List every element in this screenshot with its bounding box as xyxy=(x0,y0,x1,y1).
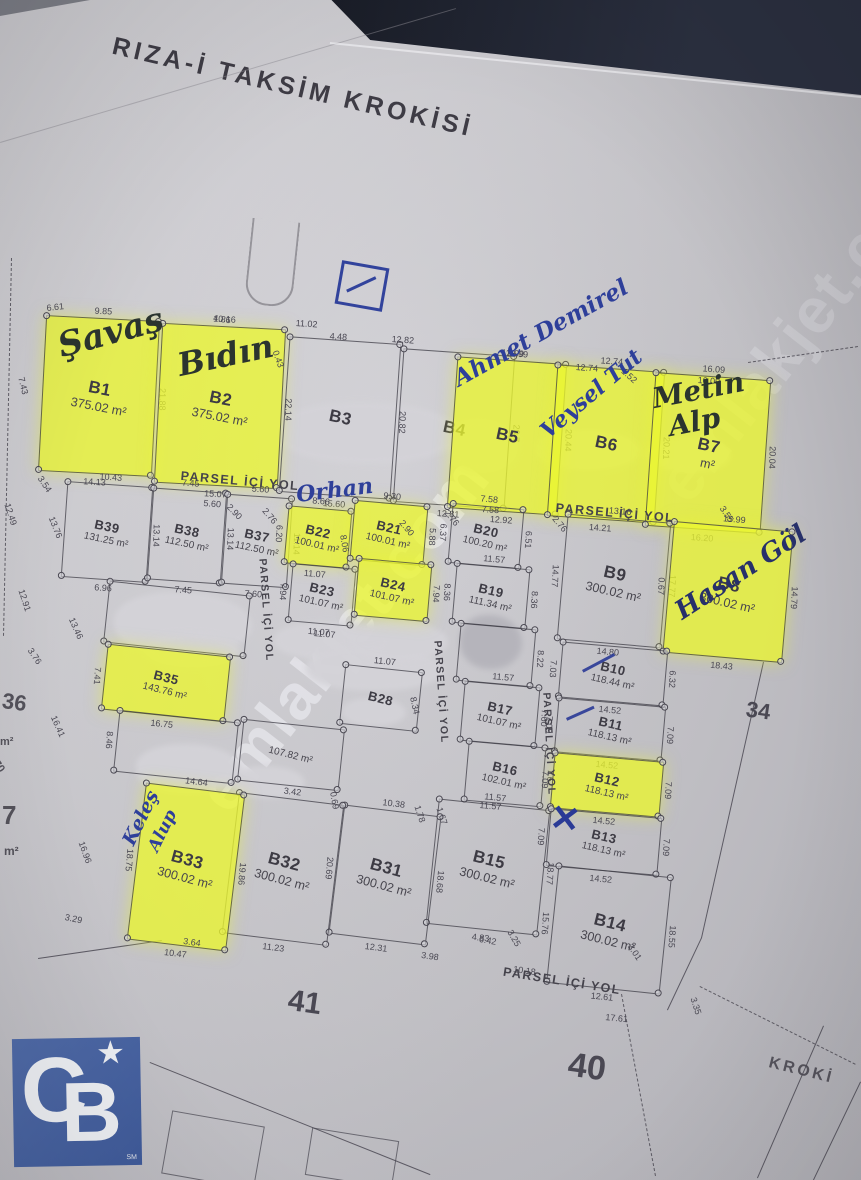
survey-node-icon xyxy=(240,716,248,724)
parcel-b9: B9300.02 m²13.1614.8014.7717.77 xyxy=(557,514,672,649)
survey-node-icon xyxy=(221,946,229,954)
survey-node-icon xyxy=(544,511,551,518)
survey-node-icon xyxy=(453,560,461,568)
dimension-label: 7.09 xyxy=(663,781,674,799)
survey-node-icon xyxy=(555,694,563,702)
survey-node-icon xyxy=(652,369,659,376)
dimension-label: 8.36 xyxy=(442,583,453,601)
survey-node-icon xyxy=(289,560,297,568)
photo-dark-corner xyxy=(0,0,90,16)
dimension-label: 6.20 xyxy=(274,525,285,543)
survey-node-icon xyxy=(322,940,330,948)
survey-node-icon xyxy=(654,989,662,997)
dimension-label: 8.46 xyxy=(104,731,115,749)
dimension-label: 3.98 xyxy=(421,950,440,962)
parcel-id-label: B6 xyxy=(593,432,619,456)
survey-node-icon xyxy=(104,640,112,648)
dimension-label: 11.57 xyxy=(483,553,506,565)
survey-node-icon xyxy=(143,779,151,787)
survey-node-icon xyxy=(535,684,543,692)
parcel-id-label: B3 xyxy=(327,406,353,430)
parcel-b10: B10118.44 m²14.527.036.32 xyxy=(558,641,668,706)
survey-node-icon xyxy=(350,610,358,618)
logo-star-icon: ★ xyxy=(96,1033,125,1071)
survey-node-icon xyxy=(456,735,464,743)
dimension-label: 20.04 xyxy=(767,446,778,469)
boundary-line xyxy=(748,346,858,363)
survey-node-icon xyxy=(457,620,465,628)
parcel-b3: B315.6020.82 xyxy=(279,336,402,499)
dimension-label: 16.41 xyxy=(49,714,67,739)
parcel-area-label: 107.82 m² xyxy=(268,744,314,766)
dimension-label: 13.46 xyxy=(67,616,85,641)
road-label: PARSEL İÇİ YOL xyxy=(431,640,450,744)
survey-node-icon xyxy=(448,617,456,625)
survey-node-icon xyxy=(777,658,785,666)
parcel-b24: B24101.07 m²7.94 xyxy=(354,558,433,622)
edge-fragment-label: 70 xyxy=(0,758,7,775)
boundary-line xyxy=(757,1026,824,1178)
survey-node-icon xyxy=(124,934,132,942)
dimension-label: 5.88 xyxy=(427,528,438,546)
survey-node-icon xyxy=(284,616,292,624)
survey-node-icon xyxy=(766,377,773,384)
edge-fragment-label: m² xyxy=(4,844,19,858)
survey-node-icon xyxy=(421,940,429,948)
dimension-label: 6.61 xyxy=(46,301,64,313)
dimension-label: 9.30 xyxy=(383,490,401,501)
dimension-label: 7.58 xyxy=(481,504,499,515)
dimension-label: 7.03 xyxy=(548,660,559,678)
survey-node-icon xyxy=(110,766,118,774)
survey-node-icon xyxy=(281,326,288,333)
dimension-label: 4.48 xyxy=(329,331,347,342)
edge-fragment-label: m² xyxy=(0,736,13,748)
parcel-b11: B11118.13 m²14.527.097.09 xyxy=(554,697,666,761)
dimension-label: 11.07 xyxy=(373,655,396,667)
logo-letter-b: B xyxy=(60,1069,122,1154)
dimension-label: 10.43 xyxy=(99,471,122,483)
dimension-label: 7.94 xyxy=(431,585,442,603)
boundary-line xyxy=(813,1082,861,1180)
survey-node-icon xyxy=(532,930,540,938)
dimension-label: 15.76 xyxy=(540,912,552,935)
dimension-label: 11.23 xyxy=(262,941,285,954)
survey-node-icon xyxy=(355,555,363,563)
dimension-label: 17.61 xyxy=(605,1012,628,1024)
dimension-label: 5.60 xyxy=(203,498,221,509)
logo-sm-mark: SM xyxy=(126,1154,137,1161)
survey-node-icon xyxy=(218,578,225,585)
dimension-label: 0.67 xyxy=(656,577,667,595)
dimension-label: 7.09 xyxy=(665,726,676,744)
dimension-label: 6.42 xyxy=(478,934,497,947)
survey-node-icon xyxy=(465,737,473,745)
dimension-label: 11.57 xyxy=(492,671,515,683)
survey-node-icon xyxy=(525,566,533,574)
survey-node-icon xyxy=(444,558,452,566)
dimension-label: 14.77 xyxy=(550,564,561,587)
survey-node-icon xyxy=(422,617,430,625)
dimension-label: 12.31 xyxy=(364,941,388,954)
survey-node-icon xyxy=(559,638,567,646)
dimension-label: 10.47 xyxy=(164,947,188,960)
survey-node-icon xyxy=(346,554,354,562)
survey-node-icon xyxy=(657,815,665,823)
survey-node-icon xyxy=(342,661,350,669)
parcel-b17: B17101.07 m²11.577.60 xyxy=(460,681,541,747)
dimension-label: 3.29 xyxy=(64,912,83,925)
dimension-label: 7.09 xyxy=(661,838,672,856)
dimension-label: 3.54 xyxy=(36,474,54,494)
dimension-label: 14.79 xyxy=(789,586,800,609)
survey-node-icon xyxy=(461,678,469,686)
survey-node-icon xyxy=(116,707,124,715)
boundary-line xyxy=(3,258,12,636)
survey-node-icon xyxy=(35,466,42,473)
dimension-label: 8.36 xyxy=(529,591,540,609)
survey-node-icon xyxy=(64,478,71,485)
parcel-b31: B31300.02 m²10.3812.3120.6918.68 xyxy=(328,805,441,946)
survey-node-icon xyxy=(554,361,561,368)
boundary-line xyxy=(700,986,856,1065)
edge-fragment-label: 7 xyxy=(2,800,16,831)
dimension-label: 11.02 xyxy=(295,318,318,330)
survey-node-icon xyxy=(285,502,293,510)
block-number-41: 41 xyxy=(286,984,324,1022)
survey-node-icon xyxy=(531,626,539,634)
survey-node-icon xyxy=(452,675,460,683)
survey-node-icon xyxy=(286,333,293,340)
partial-parcel-outline xyxy=(305,1127,399,1180)
survey-node-icon xyxy=(663,647,671,655)
parcel: 8.46 xyxy=(113,710,239,784)
survey-node-icon xyxy=(454,353,461,360)
dimension-label: 16.96 xyxy=(77,840,94,865)
block-number-40: 40 xyxy=(565,1046,608,1090)
dimension-label: 0.69 xyxy=(328,791,341,810)
survey-node-icon xyxy=(43,312,50,319)
survey-node-icon xyxy=(106,577,114,585)
survey-node-icon xyxy=(150,484,157,491)
survey-node-icon xyxy=(427,561,435,569)
survey-node-icon xyxy=(58,572,65,579)
survey-node-icon xyxy=(239,652,247,660)
survey-node-icon xyxy=(144,574,151,581)
dimension-label: 6.32 xyxy=(667,670,678,688)
dimension-label: 6.37 xyxy=(438,523,449,541)
parcel-area-label: m² xyxy=(699,455,716,472)
parcel-id-label: B1 xyxy=(86,377,112,401)
survey-node-icon xyxy=(423,503,431,511)
parcel-b39: B39131.25 m²10.436.9613.14 xyxy=(61,481,153,583)
pencil-u-mark xyxy=(244,218,301,309)
dimension-label: 7.09 xyxy=(536,827,547,845)
edge-fragment-label: 36 xyxy=(0,688,28,717)
pen-x-mark: ✕ xyxy=(547,796,583,842)
kroki-corner-label: KROKİ xyxy=(767,1054,836,1088)
parcel-b19: B19111.34 m²11.578.368.36 xyxy=(452,563,531,629)
survey-node-icon xyxy=(411,726,419,734)
survey-node-icon xyxy=(98,704,106,712)
parcel: 107.82 m² xyxy=(237,719,345,791)
ink-square-doodle xyxy=(335,260,390,312)
survey-node-icon xyxy=(449,500,457,508)
parcel-b23: B23101.07 m²11.077.94 xyxy=(288,563,357,626)
boundary-line xyxy=(701,662,764,938)
survey-node-icon xyxy=(224,491,231,498)
dimension-label: 3.76 xyxy=(26,646,44,666)
dimension-label: 7.41 xyxy=(92,667,103,685)
dimension-label: 11.07 xyxy=(313,628,336,640)
dimension-label: 7.94 xyxy=(278,583,289,601)
dimension-label: 3.35 xyxy=(688,996,703,1016)
photo-of-cadastral-sketch: RIZA-İ TAKSİM KROKİSİ emlakjet.com emlak… xyxy=(0,0,861,1180)
dimension-label: 8.22 xyxy=(535,650,546,668)
dimension-label: 7.43 xyxy=(16,376,30,395)
dimension-label: 18.43 xyxy=(710,660,733,672)
boundary-line xyxy=(38,940,162,959)
dimension-label: 12.74 xyxy=(575,362,598,374)
survey-node-icon xyxy=(666,874,674,882)
dimension-label: 12.91 xyxy=(16,588,32,613)
parcel-id-label: B5 xyxy=(494,424,520,448)
survey-node-icon xyxy=(659,758,667,766)
dimension-label: 10.38 xyxy=(382,797,406,810)
coldwell-banker-logo: C B ★ SM xyxy=(12,1037,142,1167)
dimension-label: 18.75 xyxy=(123,848,135,871)
survey-node-icon xyxy=(340,726,348,734)
partial-parcel-outline xyxy=(161,1110,265,1180)
survey-node-icon xyxy=(400,345,407,352)
dimension-label: 6.51 xyxy=(523,531,534,549)
survey-node-icon xyxy=(661,703,669,711)
dimension-label: 3.42 xyxy=(283,786,302,798)
dimension-label: 13.76 xyxy=(47,515,65,540)
sketch-title: RIZA-İ TAKSİM KROKİSİ xyxy=(109,32,476,143)
dimension-label: 18.55 xyxy=(667,925,679,948)
survey-node-icon xyxy=(336,718,344,726)
survey-node-icon xyxy=(435,795,443,803)
survey-node-icon xyxy=(555,862,563,870)
parcel-id-label: B28 xyxy=(367,688,395,709)
dimension-label: 12.82 xyxy=(391,334,414,346)
dimension-label: 11.57 xyxy=(479,800,502,812)
parcel-id-label: B2 xyxy=(207,387,233,411)
